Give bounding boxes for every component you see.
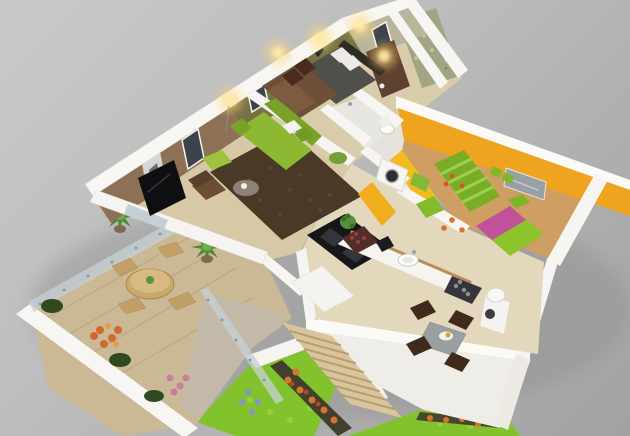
kids-floor-toys-2 (459, 227, 465, 233)
mosaic-speckle-dark-6 (445, 67, 448, 70)
flowerbed-orange-flowers-5 (331, 417, 338, 424)
railing-posts-west-2 (63, 289, 66, 292)
deck-flowers-pink-4 (183, 375, 190, 382)
stove-burners-3 (458, 280, 462, 284)
planter-bush-2 (109, 353, 131, 367)
stove-burners-1 (454, 284, 458, 288)
kids-floor-toys-1 (449, 217, 455, 223)
flowerbed-orange-flowers-2 (297, 387, 304, 394)
flowerbed-red-flowers-2 (316, 402, 321, 407)
deck-flowers-orange-light-1 (105, 323, 111, 329)
grass-highlights-5 (287, 417, 293, 423)
shower-head-1 (348, 102, 352, 106)
coffee-table-candle-1 (241, 183, 247, 189)
flowerbed-lower-flowers-1 (427, 415, 433, 421)
flowerbed-blue-flowers-1 (245, 389, 251, 395)
flowerbed-blue-flowers-4 (249, 409, 255, 415)
kids-shelf-toys-2 (460, 184, 465, 189)
planter-bush-1 (41, 299, 63, 313)
shape-root (16, 0, 630, 436)
patio-centerpiece-plant-1 (146, 276, 154, 284)
kids-shelf-toys-1 (450, 174, 455, 179)
mosaic-speckle-light-4 (430, 48, 433, 51)
railing-posts-west-1 (39, 303, 42, 306)
deck-flowers-orange-2 (108, 334, 116, 342)
rug-shag-texture-10 (328, 193, 332, 197)
railing-posts-inner-5 (263, 379, 266, 382)
sconce-glow-2 (314, 32, 326, 44)
flowerbed-blue-flowers-3 (239, 399, 245, 405)
kitchen-sink-basin (402, 257, 414, 264)
kids-shelf-toys-3 (444, 182, 449, 187)
railing-posts-inner-4 (249, 359, 252, 362)
rug-shag-texture-8 (318, 208, 322, 212)
washing-machine-door (386, 170, 399, 183)
wine-bottles-1 (350, 236, 354, 240)
palm-pot-1 (114, 225, 126, 233)
grass-highlights-2 (267, 409, 273, 415)
rug-shag-texture-4 (298, 173, 302, 177)
sconce-glow-3 (354, 20, 366, 32)
deck-flowers-orange-3 (100, 340, 108, 348)
kids-floor-toys-3 (441, 225, 447, 231)
deck-flowers-pink-1 (167, 375, 174, 382)
kitchen-faucet-1 (412, 250, 416, 254)
railing-posts-inner-1 (207, 299, 210, 302)
deck-flowers-orange-1 (96, 326, 104, 334)
apartment-3d-floor-plan (0, 0, 630, 436)
water-boiler (487, 288, 505, 302)
wine-bottles-2 (356, 240, 360, 244)
rug-shag-texture-2 (268, 166, 272, 170)
hall-plant-bench (329, 152, 347, 164)
stove-burners-4 (466, 292, 470, 296)
railing-posts-inner-2 (221, 319, 224, 322)
floor-lamp-glow (224, 94, 236, 106)
deck-flowers-pink-2 (177, 383, 184, 390)
railing-posts-inner-3 (235, 339, 238, 342)
wine-bottles-4 (354, 232, 358, 236)
palm-pot-2 (201, 255, 213, 263)
floor-plan-scene (0, 0, 630, 436)
rug-shag-texture-5 (308, 198, 312, 202)
kitchen-plant-leaves-1 (342, 217, 347, 222)
deck-flowers-orange-light-2 (113, 341, 119, 347)
flowerbed-orange-flowers-3 (309, 397, 316, 404)
sconce-glow-1 (272, 47, 284, 59)
planter-bush-3 (144, 390, 164, 402)
trash-bin (485, 309, 495, 319)
railing-posts-west-3 (87, 275, 90, 278)
railing-posts-west-6 (159, 233, 162, 236)
grass-highlights-1 (247, 397, 253, 403)
rug-shag-texture-3 (288, 188, 292, 192)
rug-shag-texture-7 (278, 213, 282, 217)
stove-burners-2 (462, 288, 466, 292)
deck-flowers-orange-4 (114, 326, 122, 334)
flowerbed-orange-flowers-6 (293, 369, 300, 376)
deck-flowers-orange-5 (90, 332, 98, 340)
railing-posts-west-5 (135, 247, 138, 250)
flowerbed-blue-flowers-2 (255, 399, 261, 405)
flowerbed-orange-flowers-4 (321, 407, 328, 414)
sconce-glow-4 (378, 50, 390, 62)
flowerbed-red-flowers-1 (304, 390, 309, 395)
flowerbed-lower-flowers-2 (443, 417, 449, 423)
rug-shag-texture-6 (258, 198, 262, 202)
kitchen-plant-leaves-2 (350, 224, 355, 229)
flowerbed-red-flowers-3 (290, 382, 295, 387)
railing-posts-west-4 (111, 261, 114, 264)
nightstands-2 (380, 84, 385, 89)
mosaic-speckle-light-5 (414, 56, 417, 59)
kitchen-plant-leaves-3 (346, 214, 351, 219)
deck-flowers-pink-3 (171, 389, 178, 396)
wine-bottles-3 (362, 236, 366, 240)
dining-plate-food-1 (446, 333, 451, 338)
